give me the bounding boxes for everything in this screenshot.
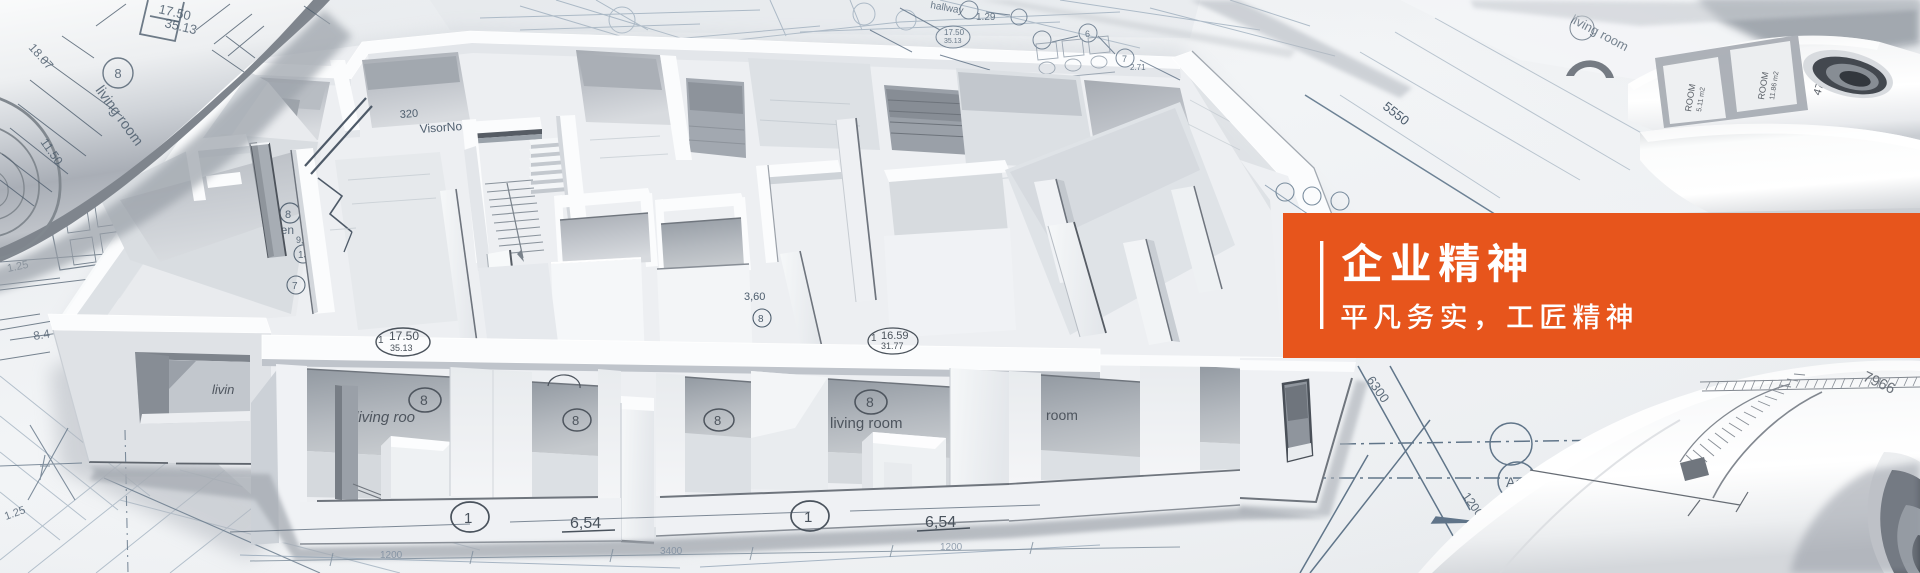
svg-text:8: 8: [758, 314, 764, 325]
svg-text:living roo: living roo: [355, 409, 415, 426]
svg-text:1: 1: [871, 333, 877, 344]
svg-text:livin: livin: [212, 382, 234, 397]
svg-text:1200: 1200: [380, 550, 403, 561]
svg-text:17.50: 17.50: [389, 329, 419, 343]
svg-text:3400: 3400: [660, 546, 683, 557]
svg-text:8: 8: [285, 209, 291, 221]
svg-text:7: 7: [1122, 54, 1127, 64]
svg-text:1200: 1200: [940, 542, 963, 553]
svg-text:2.71: 2.71: [1130, 63, 1146, 72]
svg-text:living room: living room: [830, 415, 903, 432]
svg-text:31.77: 31.77: [881, 341, 904, 351]
svg-text:8: 8: [114, 66, 121, 81]
svg-text:1: 1: [378, 335, 384, 346]
svg-text:320: 320: [399, 108, 418, 121]
svg-text:6,54: 6,54: [570, 515, 601, 532]
svg-text:8: 8: [714, 413, 721, 428]
svg-text:35.13: 35.13: [390, 343, 413, 353]
svg-text:1: 1: [804, 509, 812, 526]
svg-text:7: 7: [292, 281, 298, 292]
svg-text:8: 8: [420, 392, 428, 408]
svg-text:1.29: 1.29: [976, 12, 996, 23]
svg-text:1: 1: [464, 510, 472, 527]
svg-text:3,60: 3,60: [744, 291, 765, 303]
svg-text:room: room: [1046, 407, 1078, 423]
svg-text:35.13: 35.13: [944, 38, 962, 45]
svg-text:17.50: 17.50: [944, 28, 965, 37]
svg-text:8: 8: [866, 394, 874, 410]
svg-text:8: 8: [572, 413, 579, 428]
svg-text:8.4: 8.4: [32, 326, 51, 342]
